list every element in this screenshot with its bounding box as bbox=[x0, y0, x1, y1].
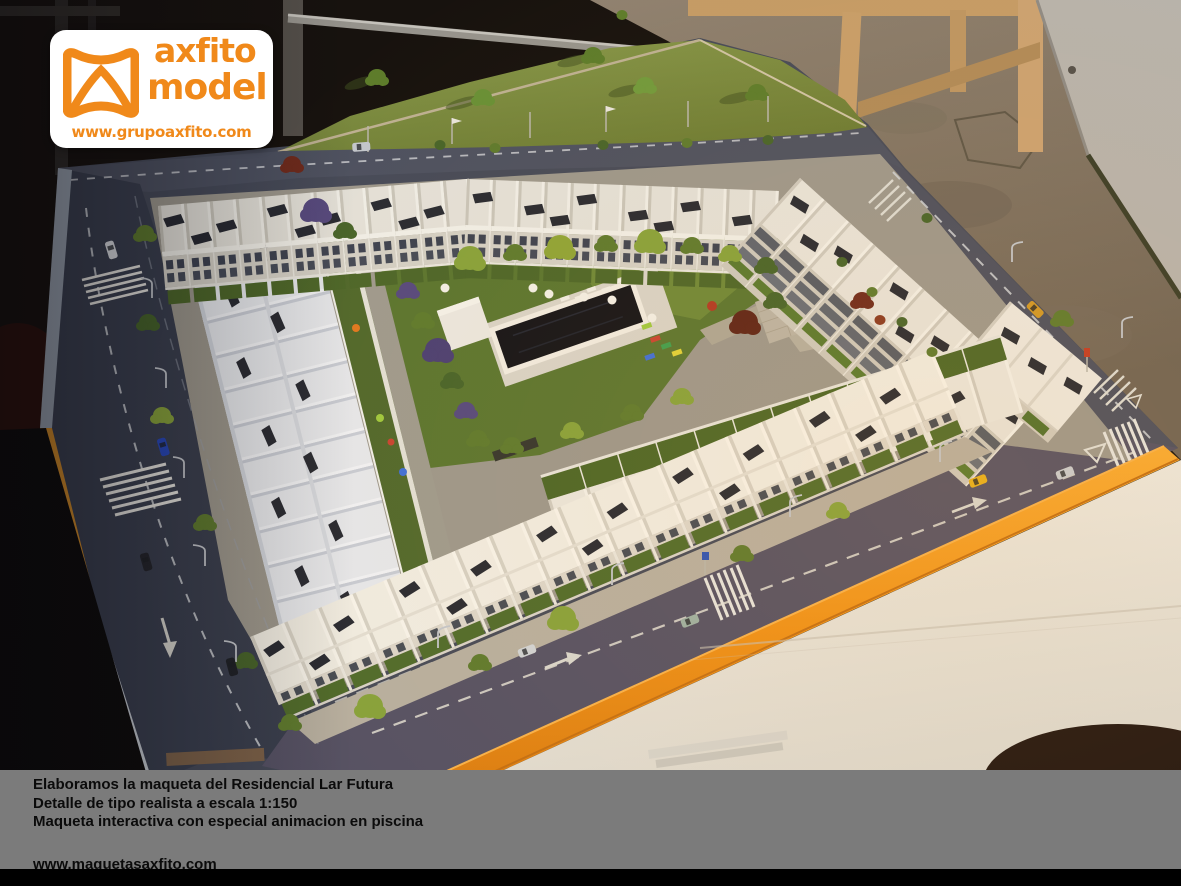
logo-brand-word-1: axfito bbox=[147, 34, 267, 67]
caption-line-3: Maqueta interactiva con especial animaci… bbox=[0, 813, 1181, 832]
logo-brand-words: axfito model bbox=[147, 34, 267, 106]
bottom-black-strip bbox=[0, 869, 1181, 886]
logo-brand-word-2: model bbox=[147, 70, 267, 106]
caption-line-2: Detalle de tipo realista a escala 1:150 bbox=[0, 795, 1181, 814]
logo-website-url: www.grupoaxfito.com bbox=[50, 123, 273, 141]
screenshot-root: axfito model www.grupoaxfito.com Elabora… bbox=[0, 0, 1181, 886]
axfito-logo-icon bbox=[63, 39, 139, 127]
caption-bar: Elaboramos la maqueta del Residencial La… bbox=[0, 770, 1181, 869]
caption-line-1: Elaboramos la maqueta del Residencial La… bbox=[0, 776, 1181, 795]
axfito-model-logo-overlay: axfito model www.grupoaxfito.com bbox=[50, 30, 273, 148]
